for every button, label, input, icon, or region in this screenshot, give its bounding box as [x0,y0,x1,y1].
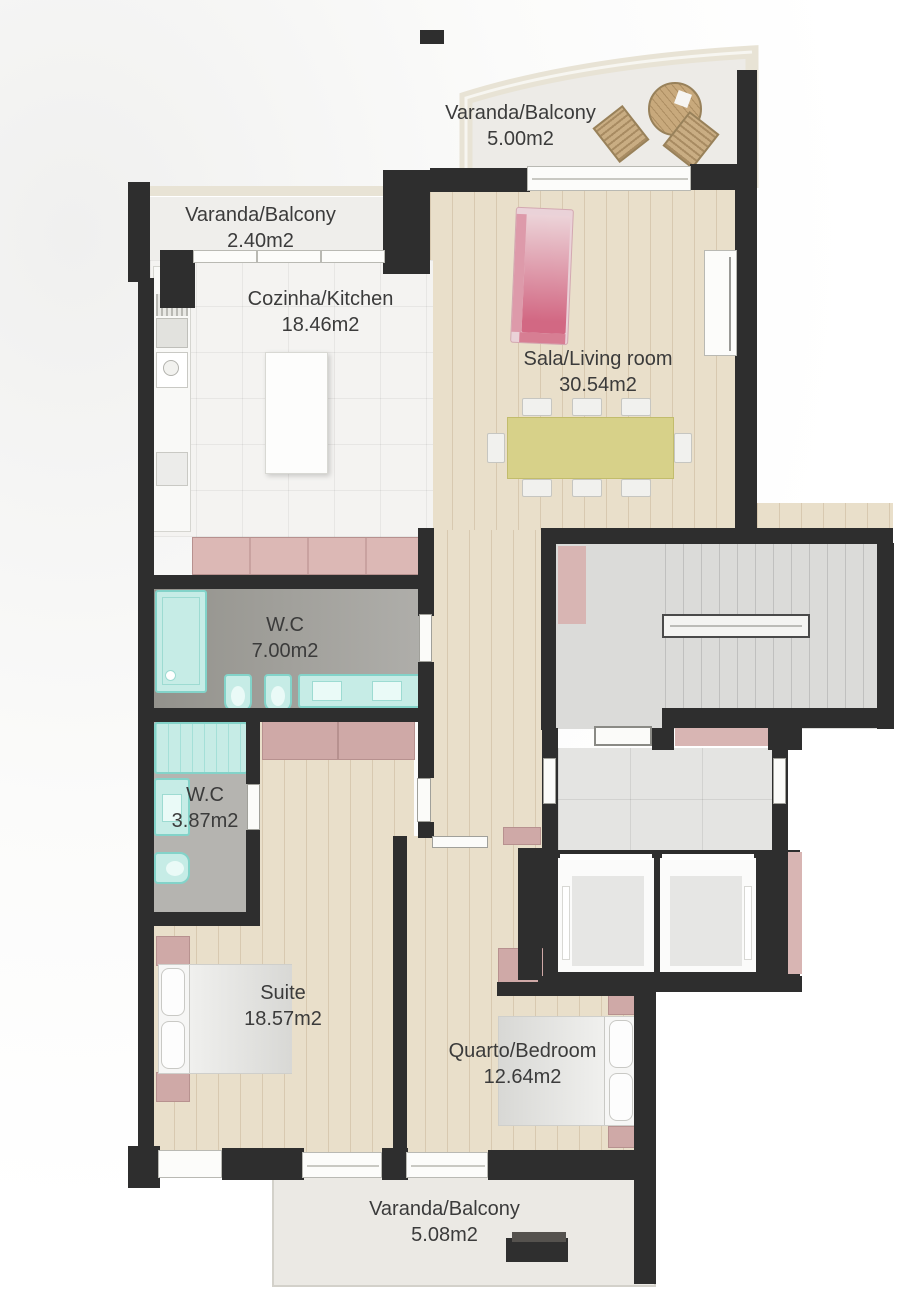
living-side-window [704,250,737,356]
room-area: 5.08m2 [352,1222,537,1248]
suite-sliding-door [302,1152,382,1178]
wall-segment [138,575,434,589]
entry-hall-right-door [773,758,786,804]
wall-segment [735,188,757,535]
room-area: 7.00m2 [215,638,355,664]
bedroom-sliding-door [406,1152,488,1178]
room-label-kitchen: Cozinha/Kitchen 18.46m2 [228,286,413,338]
stair-railing-line [670,625,802,627]
elevator-cabin [572,876,644,966]
balcony-kitchen-wall-band [150,186,385,197]
room-area: 2.40m2 [168,228,353,254]
wall-segment [160,250,195,308]
kitchen-cabinet-row [192,537,422,575]
sofa [510,207,574,345]
room-label-wc-guest: W.C 3.87m2 [135,782,275,834]
wall-segment [383,170,430,274]
bedroom-nightstand [608,1126,636,1148]
wall-segment [690,164,756,190]
wall-segment [877,543,894,729]
wall-segment [128,1146,160,1188]
dining-table [507,417,674,479]
elevator-car [558,858,654,972]
dishwasher [156,452,188,486]
room-name: Suite [203,980,363,1006]
room-label-balcony-top: Varanda/Balcony 5.00m2 [428,100,613,152]
room-area: 12.64m2 [430,1064,615,1090]
shower [155,590,207,693]
wall-segment [420,30,444,44]
window-glass-line [729,257,731,351]
wall-segment [652,728,674,750]
wall-segment [430,168,530,192]
suite-pillow [161,968,185,1016]
wall-segment [393,836,407,1152]
wall-segment [138,708,434,722]
room-area: 30.54m2 [503,372,693,398]
dining-chair [674,433,692,463]
room-area: 18.46m2 [228,312,413,338]
room-label-bedroom: Quarto/Bedroom 12.64m2 [430,1038,615,1090]
upper-landing-wood-strip [757,503,893,530]
sink-basin [163,360,179,376]
shower-drain [165,670,176,681]
room-name: Quarto/Bedroom [430,1038,615,1064]
wall-segment [541,528,556,730]
window-glass-line [411,1165,485,1167]
vanity-sink [372,681,402,701]
room-label-balcony-bottom: Varanda/Balcony 5.08m2 [352,1196,537,1248]
entry-hall-floor [558,748,772,852]
bidet [264,674,292,712]
dining-chair [522,479,552,497]
bedroom-hall-door [432,836,488,848]
wall-segment [545,528,893,544]
toilet-guest [154,852,190,884]
wall-segment [128,182,150,282]
room-label-suite: Suite 18.57m2 [203,980,363,1032]
dining-chair [487,433,505,463]
sofa-seat [522,214,571,334]
apartment-entry-door [594,726,652,746]
double-vanity [298,674,422,708]
dining-chair [572,398,602,416]
hall-mat [503,827,541,845]
room-area: 3.87m2 [135,808,275,834]
corridor-floor [425,530,543,840]
room-label-living: Sala/Living room 30.54m2 [503,346,693,398]
dining-chair [572,479,602,497]
elevator-rail [562,886,570,960]
room-name: Varanda/Balcony [168,202,353,228]
elevator-rail [744,886,752,960]
shower-guest [154,722,248,774]
elevator-cabin [670,876,742,966]
dining-chair [621,479,651,497]
suite-door [417,778,431,822]
room-area: 18.57m2 [203,1006,363,1032]
floor-plan: Varanda/Balcony 5.00m2 Varanda/Balcony 2… [0,0,920,1297]
stairwell-cabinet [558,546,586,624]
entry-cabinet-right [788,852,802,974]
wall-segment [138,578,154,722]
suite-window [158,1150,222,1178]
room-name: W.C [135,782,275,808]
stair-railing [662,614,810,638]
wall-segment [634,986,656,1284]
window-glass-line [307,1165,379,1167]
suite-nightstand [156,1072,190,1102]
toilet [224,674,252,712]
window-glass-line [532,178,688,180]
sofa-chaise [519,332,565,344]
wall-segment [382,1148,408,1180]
room-name: Cozinha/Kitchen [228,286,413,312]
kitchen-island [265,352,328,474]
room-label-balcony-kitchen: Varanda/Balcony 2.40m2 [168,202,353,254]
suite-wardrobe [262,720,415,760]
room-name: Sala/Living room [503,346,693,372]
room-name: Varanda/Balcony [428,100,613,126]
oven [156,318,188,348]
dining-chair [522,398,552,416]
wc-main-door [419,614,432,662]
suite-pillow [161,1021,185,1069]
bidet-bowl [271,686,285,706]
wall-segment [488,1150,636,1180]
wall-segment [662,708,878,728]
toilet-bowl [231,686,245,706]
room-label-wc-main: W.C 7.00m2 [215,612,355,664]
living-balcony-window [527,166,691,191]
wall-segment [768,728,802,750]
room-name: W.C [215,612,355,638]
toilet-guest-bowl [166,861,184,876]
wall-segment [246,720,260,784]
wall-segment [138,926,154,1158]
elevator-door-line [662,854,754,860]
room-area: 5.00m2 [428,126,613,152]
wall-segment [418,528,434,616]
wall-segment [518,848,542,980]
room-name: Varanda/Balcony [352,1196,537,1222]
elevator-car [660,858,756,972]
elevator-door-line [560,854,652,860]
wall-segment [138,278,154,578]
vanity-sink [312,681,342,701]
suite-nightstand [156,936,190,966]
wall-segment [138,912,260,926]
wall-segment [222,1148,304,1180]
dining-chair [621,398,651,416]
entry-cabinet-top [675,728,773,746]
entry-hall-left-door [543,758,556,804]
wall-segment [538,976,802,992]
